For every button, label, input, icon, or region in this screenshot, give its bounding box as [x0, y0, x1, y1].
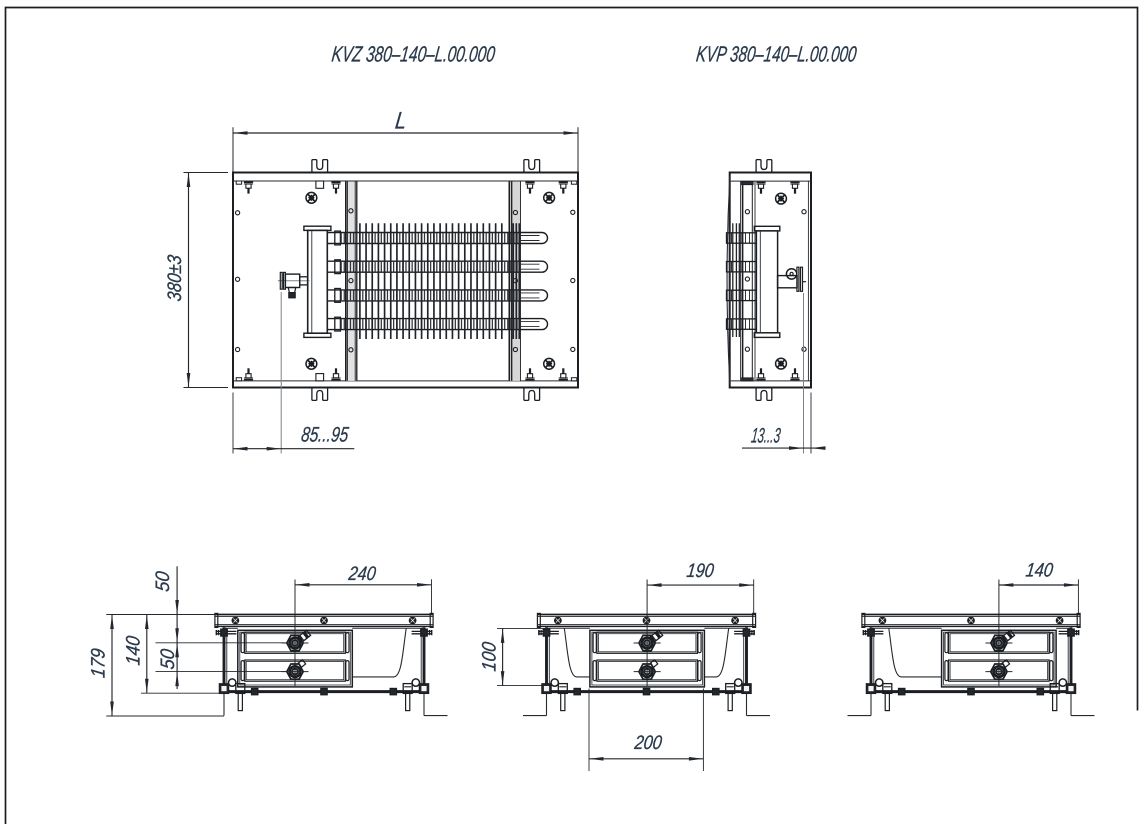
svg-text:200: 200: [633, 732, 664, 754]
svg-text:KVZ 380–140–L.00.000: KVZ 380–140–L.00.000: [330, 42, 497, 67]
svg-text:85...95: 85...95: [300, 424, 350, 447]
svg-text:240: 240: [347, 563, 378, 585]
svg-text:179: 179: [88, 647, 110, 679]
svg-text:140: 140: [1025, 559, 1055, 581]
svg-text:50: 50: [152, 570, 174, 593]
svg-text:380±3: 380±3: [164, 254, 186, 303]
svg-text:140: 140: [122, 635, 144, 667]
svg-text:KVP 380–140–L.00.000: KVP 380–140–L.00.000: [695, 42, 859, 67]
svg-text:190: 190: [685, 560, 715, 582]
svg-text:50: 50: [157, 648, 179, 671]
svg-text:100: 100: [478, 641, 500, 673]
svg-text:13...3: 13...3: [750, 425, 782, 448]
